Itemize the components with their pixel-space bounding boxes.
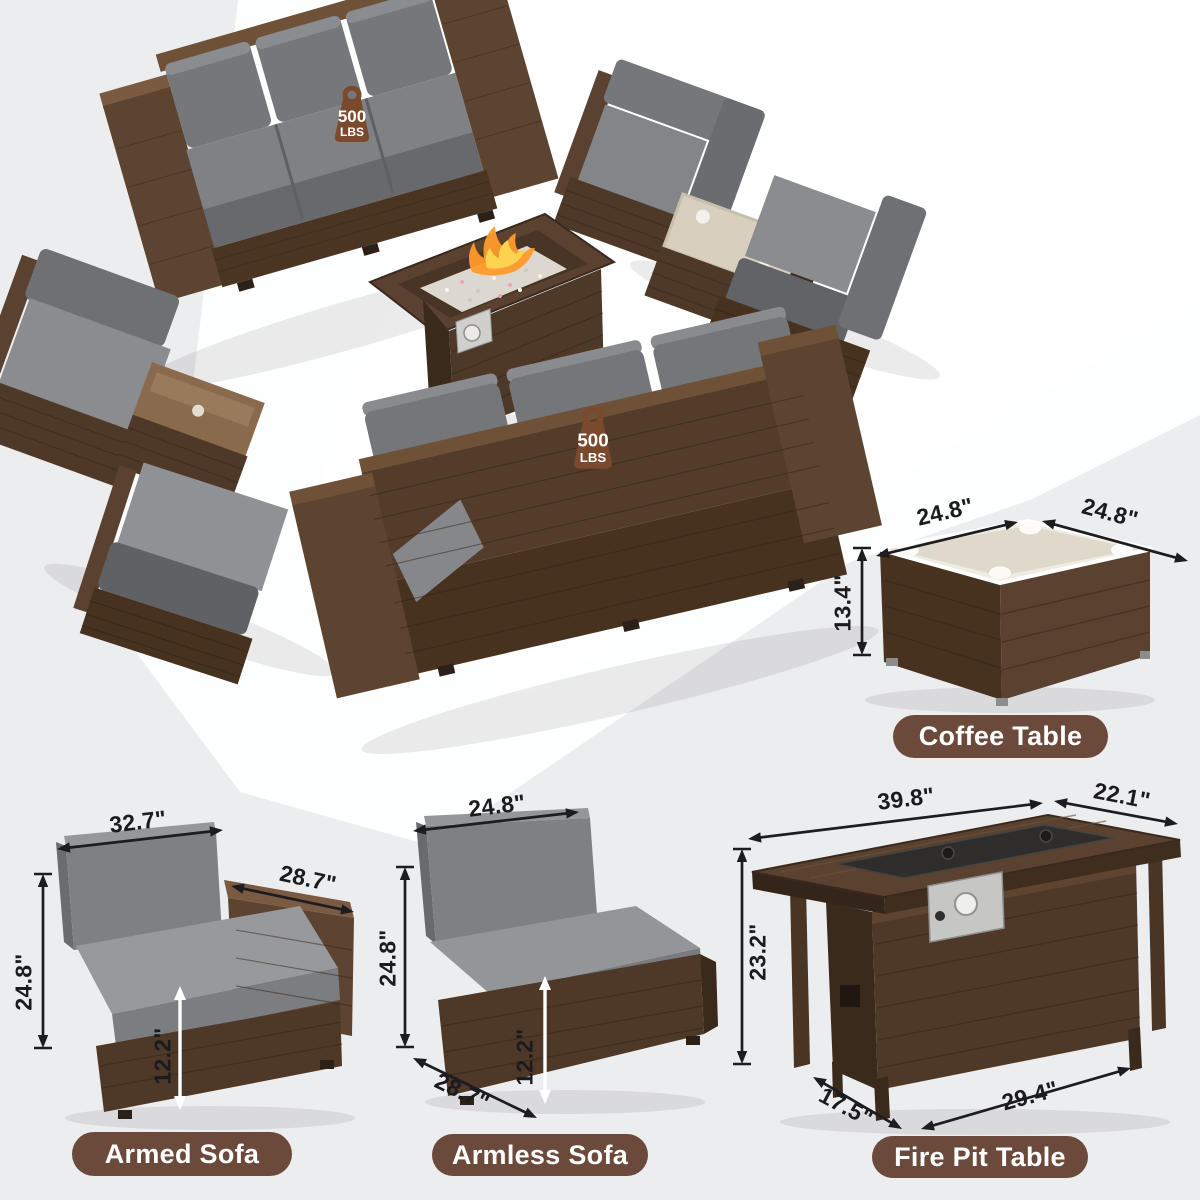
dim-armed-height: 24.8" (11, 953, 38, 1010)
weight-capacity-badge: 500 LBS (329, 86, 375, 144)
dim-coffee-height: 13.4" (830, 574, 857, 631)
scene-corner-chair-b (702, 153, 928, 401)
dim-armed-width: 32.7" (108, 805, 168, 839)
dim-coffee-top-depth: 24.8" (1079, 493, 1141, 534)
label-armed-sofa-text: Armed Sofa (105, 1139, 260, 1170)
scene-end-table-b (114, 362, 266, 507)
dim-firepit-height: 23.2" (745, 923, 772, 980)
scene-sofa-left (91, 0, 564, 314)
product-armless-sofa (416, 808, 718, 1105)
dim-armless-height: 24.8" (375, 929, 402, 986)
weight-unit: LBS (340, 125, 364, 139)
dim-coffee-top-width: 24.8" (914, 492, 976, 531)
dim-armless-width: 24.8" (467, 789, 527, 823)
dim-firepit-top-depth: 22.1" (1091, 777, 1152, 814)
scene-armless-chair-b (66, 456, 293, 685)
weight-capacity-badge: 500 LBS (567, 407, 619, 471)
dim-firepit-base-width: 29.4" (999, 1076, 1061, 1117)
dim-armless-depth: 28.7" (430, 1067, 493, 1116)
weight-value: 500 (577, 430, 608, 451)
dim-armed-seat-height: 12.2" (150, 1027, 177, 1084)
outdoor-furniture-set-infographic: 500 LBS 500 LBS 24.8" 24.8" 13.4" 32.7" … (0, 0, 1200, 1200)
dim-arrow-armless-seat-height (539, 976, 551, 1104)
label-coffee-table: Coffee Table (893, 715, 1108, 758)
scene-end-table-a (644, 192, 826, 348)
product-coffee-table (878, 521, 1152, 706)
dim-armless-seat-height: 12.2" (512, 1028, 539, 1085)
shadows (38, 234, 1170, 1135)
label-armless-sofa-text: Armless Sofa (452, 1140, 628, 1171)
scene-sofa-rear (273, 295, 892, 700)
dim-firepit-top-width: 39.8" (876, 782, 936, 816)
label-armed-sofa: Armed Sofa (72, 1132, 292, 1176)
scene-illustration (0, 0, 1200, 1200)
dimension-overlay (0, 0, 1200, 1200)
flame-icon (469, 226, 535, 276)
fire-glass-rocks (445, 268, 542, 302)
dim-arrow-coffee-top-width (876, 520, 1018, 558)
scene-armless-chair-a (0, 242, 194, 491)
background (0, 0, 1200, 1200)
dim-firepit-base-depth: 17.5" (814, 1082, 877, 1133)
weight-value: 500 (338, 107, 366, 126)
scene-corner-chair-a (544, 53, 767, 279)
product-fire-pit-table (752, 815, 1181, 1121)
dim-armed-arm-depth: 28.7" (277, 860, 339, 898)
label-fire-pit-table: Fire Pit Table (872, 1136, 1088, 1178)
label-armless-sofa: Armless Sofa (432, 1134, 648, 1176)
label-fire-pit-table-text: Fire Pit Table (894, 1142, 1066, 1173)
label-coffee-table-text: Coffee Table (919, 721, 1083, 752)
weight-unit: LBS (580, 450, 607, 465)
